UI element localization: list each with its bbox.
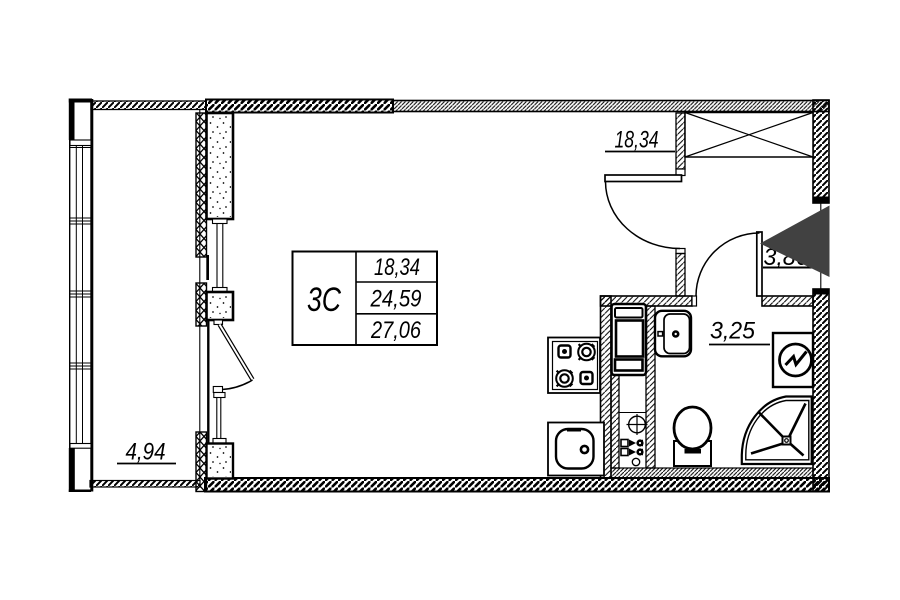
svg-text:4,94: 4,94 xyxy=(126,439,166,466)
svg-text:27,06: 27,06 xyxy=(370,317,421,344)
svg-text:18,34: 18,34 xyxy=(615,127,659,154)
svg-text:3С: 3С xyxy=(307,281,341,319)
svg-text:3,25: 3,25 xyxy=(710,318,756,345)
svg-text:24,59: 24,59 xyxy=(370,286,422,313)
svg-text:18,34: 18,34 xyxy=(374,254,420,281)
